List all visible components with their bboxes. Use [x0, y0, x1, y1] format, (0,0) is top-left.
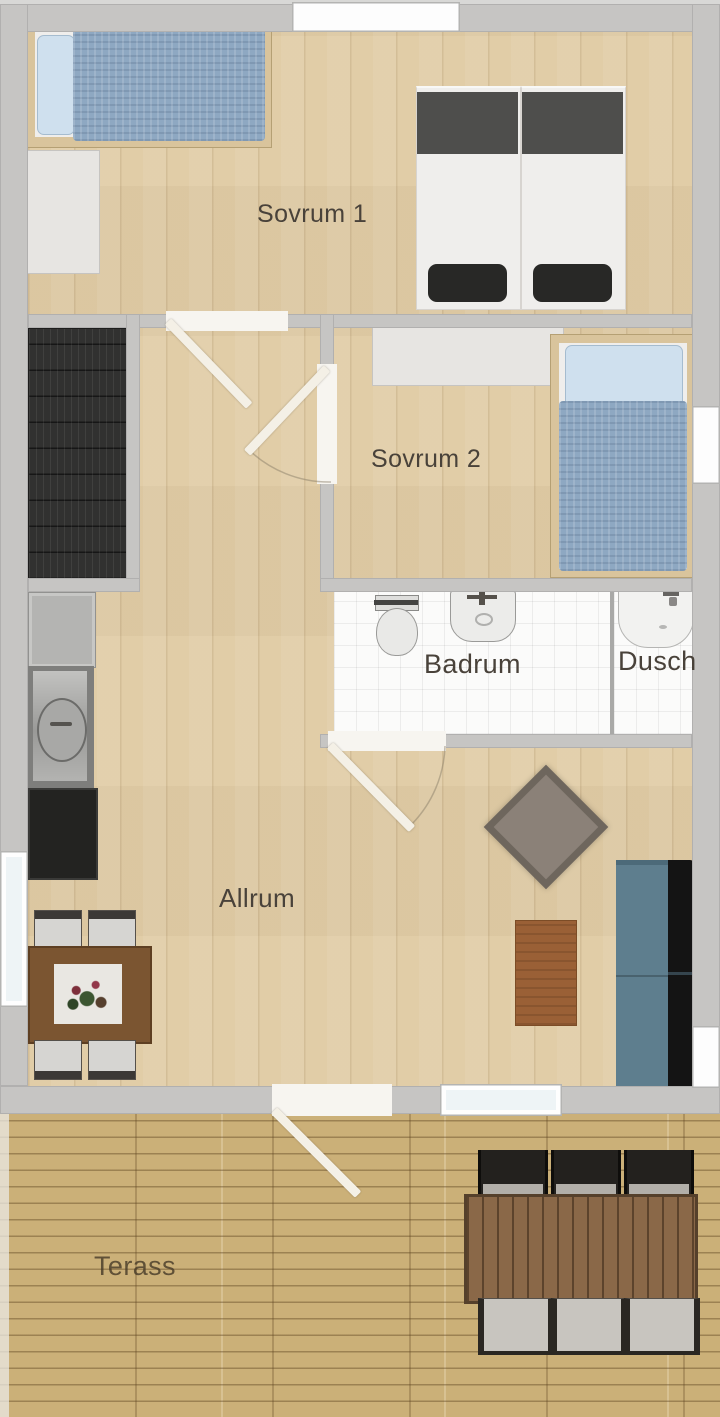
door-opening-terrace: [272, 1084, 392, 1116]
chair-back: [35, 911, 81, 919]
duvet: [417, 92, 518, 154]
dining-table: [28, 946, 152, 1044]
shower-basin: [618, 588, 694, 648]
window-sovrum2: [692, 406, 720, 484]
bed-sovrum2: [550, 334, 696, 578]
window-sofa: [692, 1026, 720, 1088]
kitchen-counter: [28, 592, 96, 668]
toilet-seat-line: [374, 600, 418, 605]
duvet: [559, 401, 687, 571]
washbasin: [450, 590, 516, 642]
kitchen-sink-unit: [28, 666, 94, 788]
toilet-bowl: [376, 608, 418, 656]
pillow: [428, 264, 507, 302]
outdoor-chair: [551, 1150, 621, 1196]
door-opening-badrum: [328, 731, 446, 751]
sofa-back: [668, 860, 694, 1088]
shower-head-icon: [669, 597, 677, 606]
outdoor-chair: [478, 1298, 554, 1355]
room-label-badrum: Badrum: [424, 649, 521, 680]
faucet-bar-icon: [467, 595, 497, 599]
outdoor-chair: [624, 1298, 700, 1355]
inner-wall-badrum-top: [320, 578, 692, 592]
chair-back: [89, 911, 135, 919]
door-opening-sovrum1: [166, 311, 288, 331]
dining-chair: [88, 910, 136, 950]
flower-decoration: [60, 972, 114, 1018]
terrace-edge: [0, 1114, 9, 1417]
room-label-sovrum2: Sovrum 2: [371, 445, 481, 474]
twin-bed-left: [416, 86, 521, 310]
room-label-terass: Terass: [94, 1251, 176, 1282]
dusch-divider: [610, 592, 614, 734]
dining-chair: [34, 1040, 82, 1080]
sofa-back-seam: [668, 972, 694, 975]
window-left: [0, 851, 28, 1007]
dresser-sovrum2: [372, 324, 564, 386]
sofa-seat: [616, 860, 668, 1093]
dining-chair: [34, 910, 82, 950]
chair-back: [35, 1071, 81, 1079]
window-top: [292, 2, 460, 32]
outdoor-table: [464, 1194, 698, 1304]
window-bottom: [440, 1084, 562, 1116]
toilet: [374, 592, 420, 656]
sink-basin: [37, 698, 87, 762]
outdoor-chair: [478, 1150, 548, 1196]
inner-wall-staircase-right: [126, 314, 140, 592]
room-label-dusch: Dusch: [618, 646, 697, 677]
outer-wall-right: [692, 4, 720, 1086]
sink-drain-icon: [50, 722, 72, 726]
drain-icon: [475, 613, 493, 626]
pillow: [565, 345, 683, 409]
floor-plan: Sovrum 1 Sovrum 2 Badrum Dusch Allrum Te…: [0, 0, 720, 1417]
outdoor-chair: [624, 1150, 694, 1196]
staircase: [28, 328, 128, 580]
chair-back: [89, 1071, 135, 1079]
inner-wall-staircase-bottom: [28, 578, 140, 592]
twin-bed-right: [521, 86, 626, 310]
duvet: [522, 92, 623, 154]
coffee-table: [515, 920, 577, 1026]
room-label-allrum: Allrum: [219, 883, 295, 914]
outdoor-chair: [551, 1298, 627, 1355]
single-bed-sovrum1: [22, 22, 272, 148]
dresser-sovrum1: [24, 150, 100, 274]
pillow: [533, 264, 612, 302]
shower-drain-icon: [659, 625, 667, 629]
pillow: [37, 35, 75, 135]
stove: [28, 788, 98, 880]
dining-chair: [88, 1040, 136, 1080]
sofa-seam: [616, 975, 668, 977]
duvet: [73, 27, 265, 141]
room-label-sovrum1: Sovrum 1: [257, 200, 367, 229]
